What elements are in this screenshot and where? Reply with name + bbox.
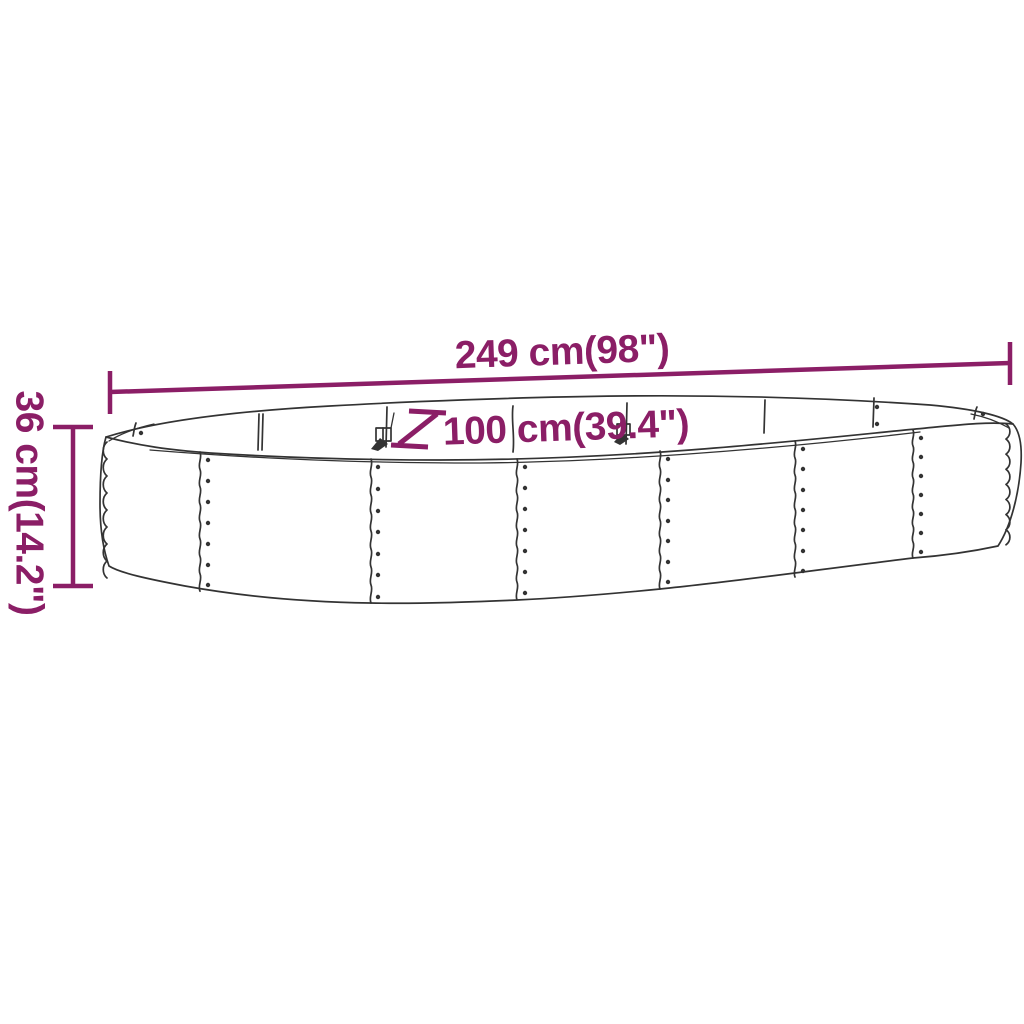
panel-seam [794,441,795,577]
height-dimension-label: 36 cm(14.2") [10,391,49,616]
back-seam [258,414,259,450]
raised-bed-line-drawing [0,0,1024,1024]
width-leader-symbol [391,411,446,447]
panel-seam [199,452,200,591]
panel-seam [516,459,517,600]
back-seam [262,414,263,450]
dimension-lines [53,342,1010,586]
corrugation-right [1006,424,1010,545]
panel-seam [370,459,371,603]
panel-seam [912,430,913,558]
back-seam [764,400,765,433]
rim-tip-seam-right [974,407,977,419]
panel-seam [659,451,660,589]
rim-tip-line-right [971,414,1009,428]
back-seam [873,398,874,427]
assembly-clip-left [371,413,394,451]
length-dimension-label: 249 cm(98") [454,329,670,375]
width-dimension-label: 100 cm(39.4") [442,404,689,452]
front-panel-seams [199,430,913,603]
clip-wire [391,413,394,428]
product-dimension-diagram: 249 cm(98") 100 cm(39.4") 36 cm(14.2") [0,0,1024,1024]
